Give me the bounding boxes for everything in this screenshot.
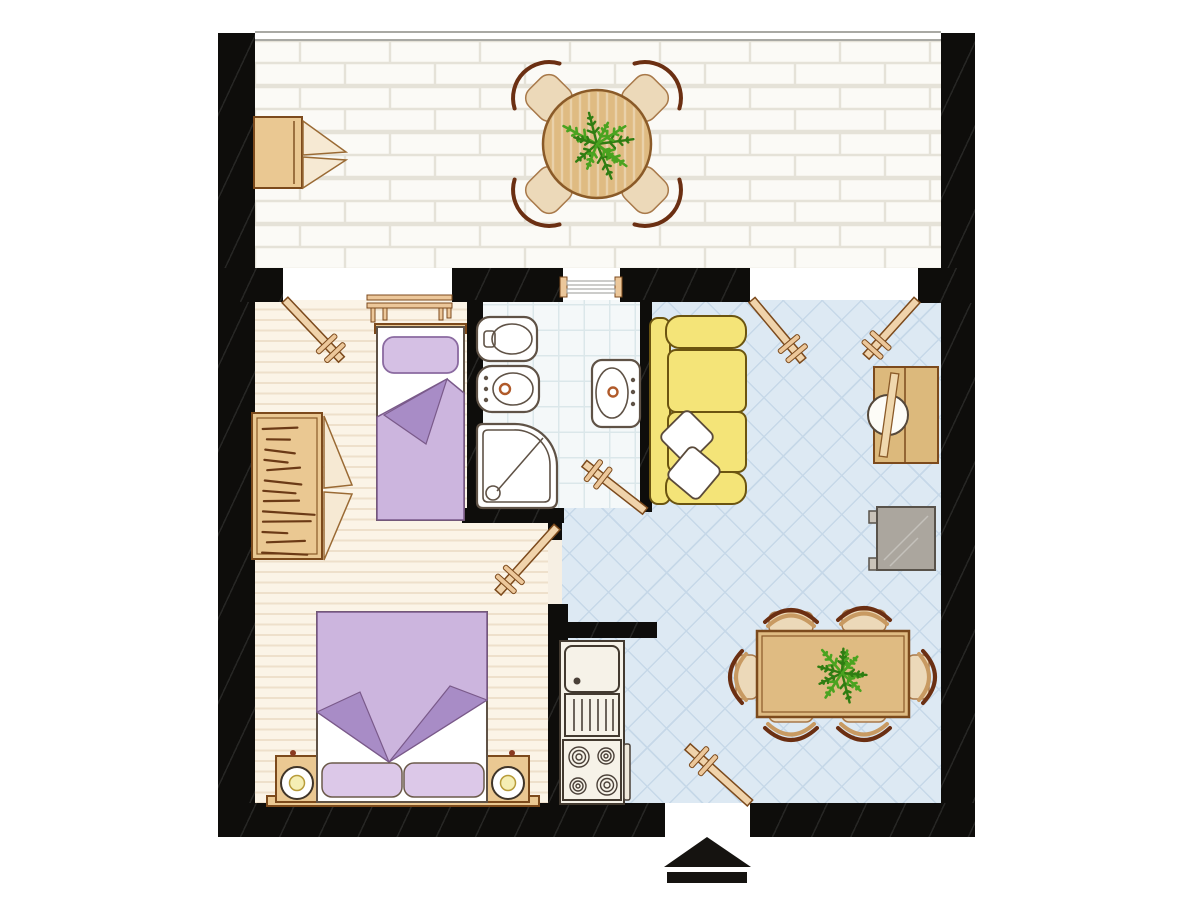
hanger-line [263, 521, 311, 522]
furniture-overlay [0, 0, 1200, 900]
door-bedroom [488, 518, 566, 601]
terrace-dining-set [513, 62, 681, 226]
dining-chair-top-2 [838, 608, 890, 632]
sofa [650, 316, 746, 504]
double-bed-pillow-right [404, 763, 484, 797]
hanger-line [267, 541, 305, 542]
terrace-storage-cabinet [254, 117, 346, 188]
desk-group [868, 367, 938, 463]
entrance-arrow [664, 837, 751, 883]
dining-chair-right [907, 651, 935, 703]
toilet [477, 317, 537, 361]
single-bed-pillow [383, 337, 458, 373]
door-entrance [679, 737, 759, 813]
door-terrace-living-right [856, 291, 926, 365]
bidet [477, 366, 539, 412]
wardrobe-door-bottom [324, 492, 352, 560]
sofa-armrest-top [666, 316, 746, 348]
wardrobe [252, 413, 352, 560]
nightstand-right [487, 750, 529, 802]
corner-shower [477, 424, 557, 508]
sofa-cushion-1 [668, 350, 746, 412]
tv-unit [869, 507, 935, 570]
sofa-backrest [650, 318, 670, 504]
cabinet-door-bottom [303, 157, 346, 188]
wardrobe-door-top [324, 416, 352, 488]
door-bathroom [576, 453, 653, 521]
stove-handle [624, 744, 630, 800]
cabinet-door-top [303, 121, 346, 155]
refrigerator [565, 646, 619, 692]
dining-set [730, 608, 935, 740]
double-bed-group [267, 612, 539, 806]
dining-table [757, 631, 909, 717]
double-bed-pillow-left [322, 763, 402, 797]
door-terrace-living-left [742, 292, 813, 369]
kitchen-unit [560, 641, 630, 804]
nightstand-left [276, 750, 318, 802]
bedroom-window [367, 295, 452, 322]
stove [563, 740, 630, 800]
dining-chair-left [730, 651, 758, 703]
washbasin [592, 360, 640, 427]
hanger-line [263, 532, 288, 533]
hanger-line [263, 428, 298, 429]
hanger-line [264, 501, 299, 502]
double-bed [317, 612, 487, 802]
floor-plan [0, 0, 1200, 900]
vented-cabinet [565, 694, 619, 736]
single-bed [375, 324, 466, 520]
bathroom-window [560, 277, 622, 297]
door-terrace-bedroom [276, 291, 351, 368]
